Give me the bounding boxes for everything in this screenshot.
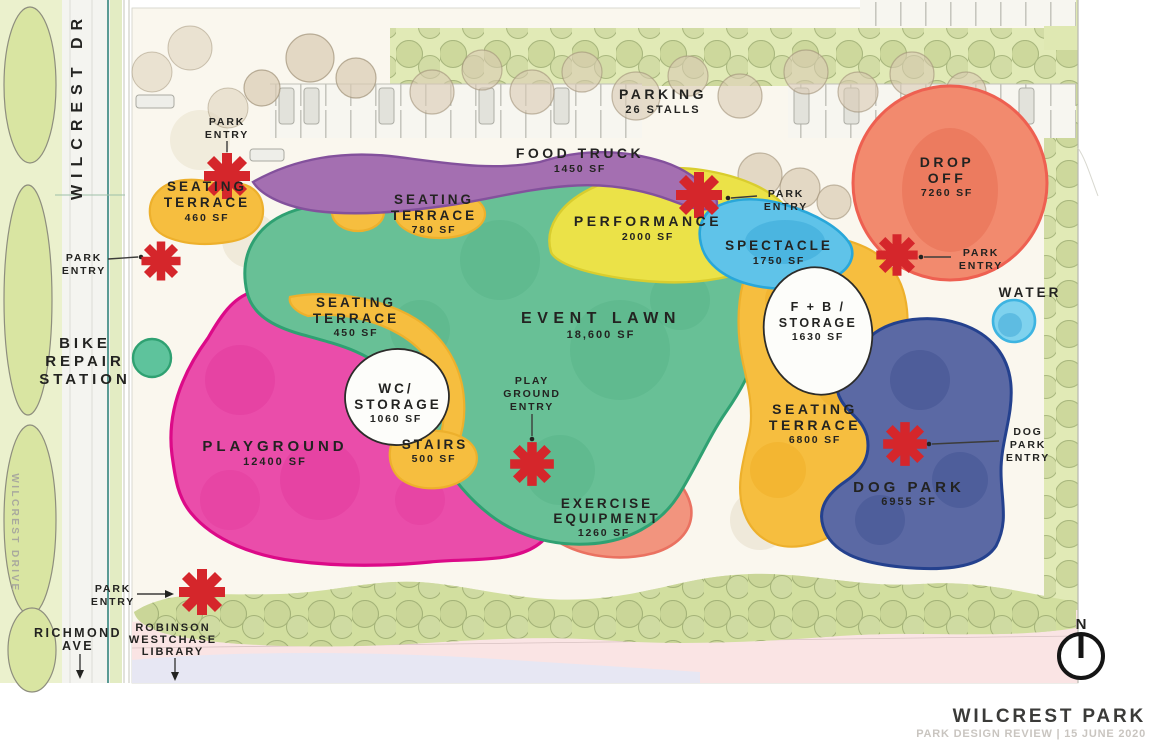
richmond-ave-label1: RICHMOND [34,626,122,640]
park-entry-nw-label1: PARK [209,116,245,128]
park-entry-marker-north [676,172,722,218]
zone-stairs-area: 500 SF [412,453,457,465]
plan-title: WILCREST PARK [953,706,1146,727]
zone-performance-name: PERFORMANCE [574,213,722,229]
playground-entry-label2: GROUND [503,388,560,400]
dog-park-entry-marker [883,422,927,466]
parking-detail: 26 STALLS [625,104,700,116]
zone-fb-name1: F + B / [791,300,846,314]
zone-food-truck-name: FOOD TRUCK [516,145,644,161]
zone-playground-area: 12400 SF [243,456,307,468]
bike-repair-label3: STATION [39,371,131,388]
site-plan-canvas: WILCREST DR WILCREST DRIVE [0,0,1159,750]
zone-drop-off-name1: DROP [920,154,974,170]
zone-event-lawn-name: EVENT LAWN [521,310,681,327]
library-label3: LIBRARY [142,646,204,658]
zone-food-truck-area: 1450 SF [554,163,606,175]
zone-seating-east-name1: SEATING [772,401,858,417]
zone-exercise-area: 1260 SF [578,527,630,539]
park-entry-marker-east [876,234,917,275]
zone-seating-north-name2: TERRACE [391,208,477,223]
zone-seating-north-area: 780 SF [412,224,457,236]
zone-wc-name1: WC/ [378,381,413,396]
park-entry-e-label2: ENTRY [959,260,1003,272]
zone-seating-nw-name2: TERRACE [164,195,250,210]
zone-spectacle-area: 1750 SF [753,255,805,267]
richmond-ave-label2: AVE [62,639,94,653]
playground-entry-label1: PLAY [515,375,549,387]
zone-exercise-name1: EXERCISE [561,496,653,511]
zone-drop-off-area: 7260 SF [921,187,973,199]
park-plan-page: WILCREST DR WILCREST DRIVE [0,0,1159,750]
planting-circle-west [133,339,171,377]
zone-event-lawn-area: 18,600 SF [567,329,636,341]
zone-water-texture [998,313,1022,337]
zone-dog-park-area: 6955 SF [881,496,937,508]
dog-park-entry-label2: PARK [1010,439,1046,451]
street-label-wilcrest-dr: WILCREST DR [69,12,86,200]
zone-wc-area: 1060 SF [370,413,422,425]
north-arrow-label: N [1076,616,1087,633]
zone-dog-park-name: DOG PARK [853,479,965,496]
playground-entry-label3: ENTRY [510,401,554,413]
zone-seating-west-area: 450 SF [334,327,379,339]
title-block: WILCREST PARK PARK DESIGN REVIEW | 15 JU… [916,706,1146,740]
plan-subtitle: PARK DESIGN REVIEW | 15 JUNE 2020 [916,728,1146,740]
dog-park-entry-label3: ENTRY [1006,452,1050,464]
zone-seating-west-name1: SEATING [316,295,396,310]
zone-fb-area: 1630 SF [792,331,844,343]
park-entry-w-label1: PARK [66,252,102,264]
park-entry-sw-label2: ENTRY [91,596,135,608]
park-entry-n-label2: ENTRY [764,201,808,213]
playground-entry-marker [510,442,554,486]
zone-seating-nw-name1: SEATING [167,179,247,194]
zone-seating-east-area: 6800 SF [789,434,841,446]
zone-wc-name2: STORAGE [354,397,442,412]
park-entry-marker-west [141,241,180,280]
zone-stairs-name: STAIRS [402,437,469,452]
park-entry-marker-southwest [179,569,225,615]
zone-fb-name2: STORAGE [779,316,857,330]
park-entry-n-label1: PARK [768,188,804,200]
water-label: WATER [999,285,1062,300]
zone-exercise-name2: EQUIPMENT [553,511,660,526]
zone-playground-name: PLAYGROUND [202,438,347,455]
dog-park-entry-label1: DOG [1013,426,1042,438]
bike-repair-label2: REPAIR [45,353,125,370]
park-entry-e-label1: PARK [963,247,999,259]
park-entry-w-label2: ENTRY [62,265,106,277]
zone-spectacle-name: SPECTACLE [725,238,833,253]
bike-repair-label1: BIKE [59,335,111,352]
zone-drop-off-name2: OFF [928,170,967,186]
parking-label: PARKING [619,86,707,102]
library-label2: WESTCHASE [129,634,217,646]
park-entry-nw-label2: ENTRY [205,129,249,141]
survey-note-leader [1078,148,1098,196]
park-entry-sw-label1: PARK [95,583,131,595]
library-label1: ROBINSON [135,622,210,634]
zone-performance-area: 2000 SF [622,231,674,243]
zone-seating-north-name1: SEATING [394,192,474,207]
zone-seating-west-name2: TERRACE [313,311,399,326]
zone-seating-east-name2: TERRACE [769,417,861,433]
street-label-wilcrest-drive-faint: WILCREST DRIVE [9,473,20,592]
zone-seating-nw-area: 460 SF [185,212,230,224]
